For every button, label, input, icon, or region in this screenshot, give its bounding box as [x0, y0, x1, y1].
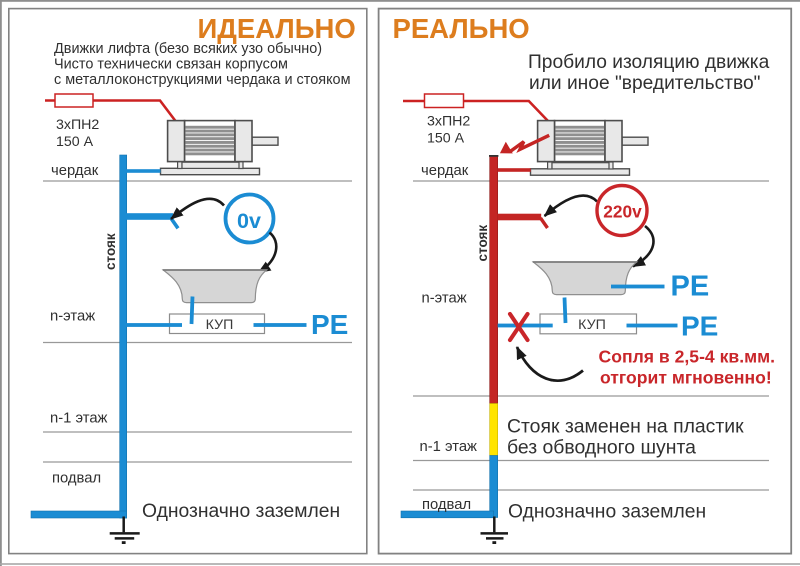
svg-text:PE: PE — [681, 311, 718, 342]
svg-text:чердак: чердак — [421, 163, 469, 179]
svg-text:с металлоконструкциями чердака: с металлоконструкциями чердака и стояком — [54, 72, 351, 88]
svg-text:КУП: КУП — [206, 317, 234, 333]
svg-text:0v: 0v — [237, 209, 261, 233]
svg-text:подвал: подвал — [422, 497, 471, 513]
svg-text:n-1 этаж: n-1 этаж — [50, 411, 108, 427]
svg-text:150 А: 150 А — [427, 131, 465, 147]
svg-text:Чисто технически связан корпус: Чисто технически связан корпусом — [54, 57, 288, 73]
svg-text:подвал: подвал — [52, 471, 101, 487]
svg-text:РЕАЛЬНО: РЕАЛЬНО — [393, 13, 530, 44]
svg-text:Однозначно заземлен: Однозначно заземлен — [508, 502, 706, 523]
svg-text:PE: PE — [671, 271, 710, 303]
svg-text:n-1 этаж: n-1 этаж — [420, 439, 478, 455]
svg-text:Сопля в 2,5-4 кв.мм.: Сопля в 2,5-4 кв.мм. — [599, 347, 776, 367]
svg-text:отгорит мгновенно!: отгорит мгновенно! — [600, 368, 772, 388]
svg-text:КУП: КУП — [578, 317, 606, 333]
svg-text:n-этаж: n-этаж — [50, 309, 95, 325]
svg-text:Движки лифта (безо всяких узо: Движки лифта (безо всяких узо обычно) — [54, 41, 322, 57]
svg-text:или иное "вредительство": или иное "вредительство" — [529, 73, 760, 94]
svg-text:Стояк заменен на пластик: Стояк заменен на пластик — [507, 416, 744, 438]
svg-text:150 А: 150 А — [56, 134, 94, 150]
svg-text:PE: PE — [311, 309, 348, 340]
svg-text:ИДЕАЛЬНО: ИДЕАЛЬНО — [198, 13, 356, 44]
svg-text:n-этаж: n-этаж — [422, 290, 467, 306]
svg-text:стояк: стояк — [475, 225, 490, 262]
svg-text:3хПН2: 3хПН2 — [56, 117, 99, 133]
svg-text:Однозначно заземлен: Однозначно заземлен — [142, 501, 340, 522]
svg-text:чердак: чердак — [51, 163, 99, 179]
svg-text:стояк: стояк — [103, 233, 118, 270]
svg-text:220v: 220v — [603, 202, 642, 222]
svg-text:3хПН2: 3хПН2 — [427, 114, 470, 130]
svg-text:без обводного шунта: без обводного шунта — [507, 437, 696, 459]
svg-text:Пробило изоляцию движка: Пробило изоляцию движка — [528, 52, 770, 73]
